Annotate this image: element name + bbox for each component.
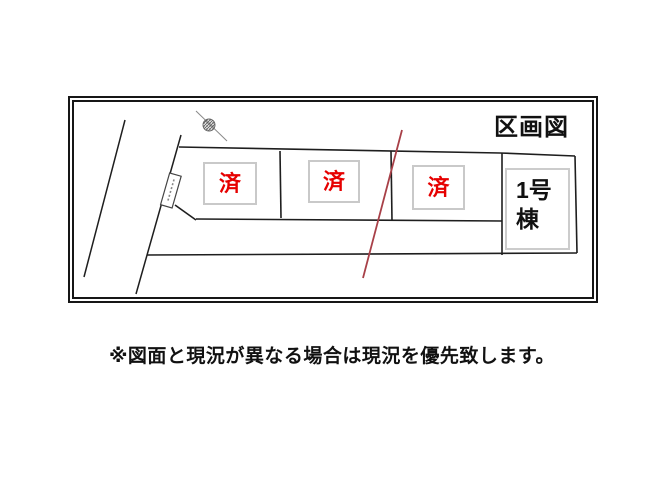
building-1-label-line2: 棟: [516, 205, 568, 234]
lot-3-sold-label: 済: [427, 177, 449, 199]
disclaimer-caption: ※図面と現況が異なる場合は現況を優先致します。: [0, 341, 664, 368]
lot-2-status-box: 済: [308, 160, 360, 203]
building-1-label-box: 1号 棟: [505, 168, 570, 250]
plan-title: 区画図: [494, 107, 569, 142]
building-1-label-line1: 1号: [516, 176, 568, 205]
lot-2-sold-label: 済: [323, 171, 345, 193]
lot-1-status-box: 済: [203, 162, 257, 205]
page: 区画図: [0, 0, 664, 498]
lot-3-status-box: 済: [412, 165, 465, 210]
lot-1-sold-label: 済: [219, 173, 241, 195]
